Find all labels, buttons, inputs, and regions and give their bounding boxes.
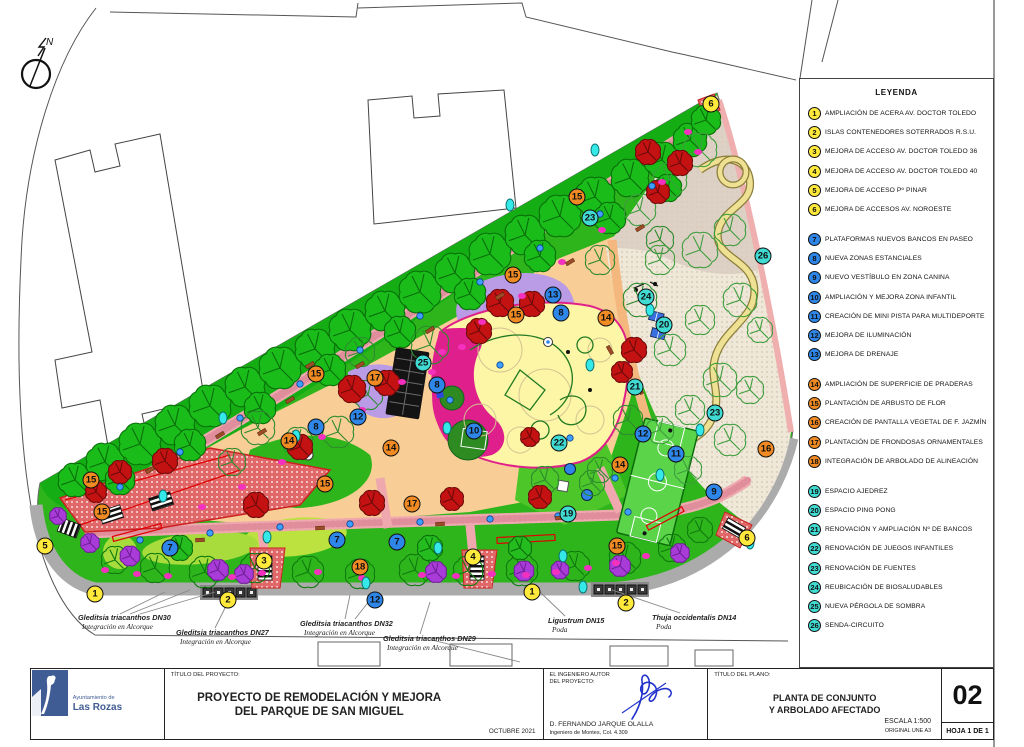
legend-item-6: 6MEJORA DE ACCESOS AV. NOROESTE bbox=[808, 203, 993, 216]
signature bbox=[614, 671, 684, 726]
legend-items: 1AMPLIACIÓN DE ACERA AV. DOCTOR TOLEDO2I… bbox=[800, 107, 993, 632]
tree-annotation: Thuja occidentalis DN14Poda bbox=[652, 613, 736, 631]
legend-item-number: 9 bbox=[808, 271, 821, 284]
legend-item-number: 18 bbox=[808, 455, 821, 468]
legend-item-21: 21RENOVACIÓN Y AMPLIACIÓN Nº DE BANCOS bbox=[808, 523, 993, 536]
tree-annotation-action: Integración en Alcorque bbox=[300, 628, 393, 637]
legend-item-number: 15 bbox=[808, 397, 821, 410]
legend-item-18: 18INTEGRACIÓN DE ARBOLADO DE ALINEACIÓN bbox=[808, 455, 993, 468]
legend-item-11: 11CREACIÓN DE MINI PISTA PARA MULTIDEPOR… bbox=[808, 310, 993, 323]
legend-item-label: AMPLIACIÓN DE SUPERFICIE DE PRADERAS bbox=[825, 381, 973, 388]
legend-item-17: 17PLANTACIÓN DE FRONDOSAS ORNAMENTALES bbox=[808, 436, 993, 449]
legend-item-1: 1AMPLIACIÓN DE ACERA AV. DOCTOR TOLEDO bbox=[808, 107, 993, 120]
sheet-number: 02 bbox=[942, 669, 993, 723]
plan-title-cell: TÍTULO DEL PLANO: PLANTA DE CONJUNTO Y A… bbox=[707, 669, 941, 739]
tree-annotation-action: Poda bbox=[548, 625, 604, 634]
legend-item-20: 20ESPACIO PING PONG bbox=[808, 504, 993, 517]
legend-item-label: ESPACIO AJEDREZ bbox=[825, 488, 888, 495]
legend-item-label: NUEVO VESTÍBULO EN ZONA CANINA bbox=[825, 274, 950, 281]
engineer-name: D. FERNANDO JARQUE OLALLA bbox=[549, 721, 653, 728]
legend-item-number: 5 bbox=[808, 184, 821, 197]
legend-item-label: CREACIÓN DE PANTALLA VEGETAL DE F. JAZMÍ… bbox=[825, 419, 986, 426]
tree-annotation-action: Integración en Alcorque bbox=[383, 643, 476, 652]
legend-item-label: MEJORA DE ACCESO AV. DOCTOR TOLEDO 36 bbox=[825, 148, 977, 155]
legend-item-8: 8NUEVA ZONAS ESTANCIALES bbox=[808, 252, 993, 265]
legend-item-label: MEJORA DE ILUMINACIÓN bbox=[825, 332, 911, 339]
legend-item-12: 12MEJORA DE ILUMINACIÓN bbox=[808, 329, 993, 342]
legend-item-3: 3MEJORA DE ACCESO AV. DOCTOR TOLEDO 36 bbox=[808, 145, 993, 158]
legend-item-9: 9NUEVO VESTÍBULO EN ZONA CANINA bbox=[808, 271, 993, 284]
legend-item-label: RENOVACIÓN DE FUENTES bbox=[825, 565, 916, 572]
legend-item-label: MEJORA DE ACCESO Pº PINAR bbox=[825, 187, 927, 194]
legend-item-label: RENOVACIÓN Y AMPLIACIÓN Nº DE BANCOS bbox=[825, 526, 972, 533]
legend-item-25: 25NUEVA PÉRGOLA DE SOMBRA bbox=[808, 600, 993, 613]
legend-item-label: CREACIÓN DE MINI PISTA PARA MULTIDEPORTE bbox=[825, 313, 985, 320]
tree-annotation: Ligustrum DN15Poda bbox=[548, 616, 604, 634]
legend-item-label: PLANTACIÓN DE ARBUSTO DE FLOR bbox=[825, 400, 946, 407]
sheet-number-cell: 02 HOJA 1 DE 1 bbox=[941, 669, 993, 739]
legend-item-label: MEJORA DE DRENAJE bbox=[825, 351, 898, 358]
tree-annotation-species: Gleditsia triacanthos DN29 bbox=[383, 634, 476, 643]
legend-item-label: ESPACIO PING PONG bbox=[825, 507, 896, 514]
legend-item-number: 12 bbox=[808, 329, 821, 342]
legend-item-16: 16CREACIÓN DE PANTALLA VEGETAL DE F. JAZ… bbox=[808, 416, 993, 429]
tree-annotation-species: Gleditsia triacanthos DN27 bbox=[176, 628, 269, 637]
legend-item-number: 3 bbox=[808, 145, 821, 158]
legend-item-number: 23 bbox=[808, 562, 821, 575]
legend-item-number: 22 bbox=[808, 542, 821, 555]
legend-item-number: 6 bbox=[808, 203, 821, 216]
legend-item-label: NUEVA PÉRGOLA DE SOMBRA bbox=[825, 603, 925, 610]
tree-annotation-action: Integración en Alcorque bbox=[78, 622, 171, 631]
legend-item-22: 22RENOVACIÓN DE JUEGOS INFANTILES bbox=[808, 542, 993, 555]
project-title-line1: PROYECTO DE REMODELACIÓN Y MEJORA bbox=[171, 691, 468, 705]
legend-item-label: SENDA-CIRCUITO bbox=[825, 622, 884, 629]
legend-item-14: 14AMPLIACIÓN DE SUPERFICIE DE PRADERAS bbox=[808, 378, 993, 391]
legend-item-label: NUEVA ZONAS ESTANCIALES bbox=[825, 255, 922, 262]
org-logo-cell: Ayuntamiento de Las Rozas bbox=[31, 669, 164, 739]
legend-item-number: 16 bbox=[808, 416, 821, 429]
legend-item-label: ISLAS CONTENEDORES SOTERRADOS R.S.U. bbox=[825, 129, 976, 136]
plan-title-line1: PLANTA DE CONJUNTO bbox=[714, 693, 935, 705]
title-block: Ayuntamiento de Las Rozas TÍTULO DEL PRO… bbox=[30, 668, 994, 740]
legend-item-label: PLATAFORMAS NUEVOS BANCOS EN PASEO bbox=[825, 236, 973, 243]
legend-item-number: 11 bbox=[808, 310, 821, 323]
legend-item-label: PLANTACIÓN DE FRONDOSAS ORNAMENTALES bbox=[825, 439, 983, 446]
legend-item-number: 25 bbox=[808, 600, 821, 613]
legend-item-2: 2ISLAS CONTENEDORES SOTERRADOS R.S.U. bbox=[808, 126, 993, 139]
legend-item-label: AMPLIACIÓN Y MEJORA ZONA INFANTIL bbox=[825, 294, 956, 301]
project-label: TÍTULO DEL PROYECTO: bbox=[171, 672, 538, 678]
plan-sheet: N 65123412613881281077712121191515151415… bbox=[0, 0, 1024, 747]
las-rozas-logo-icon bbox=[31, 669, 69, 717]
north-label: N bbox=[46, 37, 54, 48]
legend-item-number: 13 bbox=[808, 348, 821, 361]
tree-annotation: Gleditsia triacanthos DN27Integración en… bbox=[176, 628, 269, 646]
legend-item-label: AMPLIACIÓN DE ACERA AV. DOCTOR TOLEDO bbox=[825, 110, 976, 117]
legend-item-23: 23RENOVACIÓN DE FUENTES bbox=[808, 562, 993, 575]
plan-scale: ESCALA 1:500 bbox=[884, 718, 931, 725]
tree-annotation-action: Poda bbox=[652, 622, 736, 631]
legend-item-number: 2 bbox=[808, 126, 821, 139]
tree-annotation: Gleditsia triacanthos DN30Integración en… bbox=[78, 613, 171, 631]
legend-item-number: 26 bbox=[808, 619, 821, 632]
project-date: OCTUBRE 2021 bbox=[489, 728, 536, 735]
org-name-large: Las Rozas bbox=[73, 702, 122, 713]
north-arrow: N bbox=[22, 37, 54, 88]
tree-annotation-species: Gleditsia triacanthos DN32 bbox=[300, 619, 393, 628]
legend-item-number: 1 bbox=[808, 107, 821, 120]
legend-item-label: MEJORA DE ACCESOS AV. NOROESTE bbox=[825, 206, 951, 213]
legend-item-7: 7PLATAFORMAS NUEVOS BANCOS EN PASEO bbox=[808, 233, 993, 246]
legend-item-number: 14 bbox=[808, 378, 821, 391]
project-title-line2: DEL PARQUE DE SAN MIGUEL bbox=[171, 705, 468, 719]
plan-title-line2: Y ARBOLADO AFECTADO bbox=[714, 705, 935, 717]
tree-annotation: Gleditsia triacanthos DN29Integración en… bbox=[383, 634, 476, 652]
legend-item-24: 24REUBICACIÓN DE BIOSALUDABLES bbox=[808, 581, 993, 594]
legend-item-26: 26SENDA-CIRCUITO bbox=[808, 619, 993, 632]
legend-item-label: INTEGRACIÓN DE ARBOLADO DE ALINEACIÓN bbox=[825, 458, 978, 465]
legend-panel: LEYENDA 1AMPLIACIÓN DE ACERA AV. DOCTOR … bbox=[799, 78, 994, 668]
legend-item-label: RENOVACIÓN DE JUEGOS INFANTILES bbox=[825, 545, 953, 552]
legend-item-number: 8 bbox=[808, 252, 821, 265]
plan-original-format: ORIGINAL UNE A3 bbox=[885, 728, 931, 734]
legend-item-number: 17 bbox=[808, 436, 821, 449]
tree-annotation-species: Ligustrum DN15 bbox=[548, 616, 604, 625]
legend-item-number: 10 bbox=[808, 291, 821, 304]
legend-item-13: 13MEJORA DE DRENAJE bbox=[808, 348, 993, 361]
legend-item-number: 19 bbox=[808, 485, 821, 498]
tree-annotation-species: Gleditsia triacanthos DN30 bbox=[78, 613, 171, 622]
legend-item-number: 20 bbox=[808, 504, 821, 517]
legend-item-number: 4 bbox=[808, 165, 821, 178]
legend-item-5: 5MEJORA DE ACCESO Pº PINAR bbox=[808, 184, 993, 197]
legend-item-number: 21 bbox=[808, 523, 821, 536]
engineer-cell: EL INGENIERO AUTOR DEL PROYECTO: D. FERN… bbox=[543, 669, 707, 739]
legend-item-number: 7 bbox=[808, 233, 821, 246]
tree-annotation-action: Integración en Alcorque bbox=[176, 637, 269, 646]
legend-item-10: 10AMPLIACIÓN Y MEJORA ZONA INFANTIL bbox=[808, 291, 993, 304]
legend-item-label: REUBICACIÓN DE BIOSALUDABLES bbox=[825, 584, 943, 591]
sheet-info: HOJA 1 DE 1 bbox=[942, 723, 993, 739]
tree-annotation-species: Thuja occidentalis DN14 bbox=[652, 613, 736, 622]
legend-item-4: 4MEJORA DE ACCESO AV. DOCTOR TOLEDO 40 bbox=[808, 165, 993, 178]
legend-item-15: 15PLANTACIÓN DE ARBUSTO DE FLOR bbox=[808, 397, 993, 410]
engineer-title: Ingeniero de Montes, Col. 4.309 bbox=[549, 730, 627, 736]
legend-item-number: 24 bbox=[808, 581, 821, 594]
plan-label: TÍTULO DEL PLANO: bbox=[714, 672, 935, 678]
legend-item-label: MEJORA DE ACCESO AV. DOCTOR TOLEDO 40 bbox=[825, 168, 977, 175]
legend-title: LEYENDA bbox=[800, 88, 993, 97]
project-title-cell: TÍTULO DEL PROYECTO: PROYECTO DE REMODEL… bbox=[164, 669, 544, 739]
tree-annotation: Gleditsia triacanthos DN32Integración en… bbox=[300, 619, 393, 637]
legend-item-19: 19ESPACIO AJEDREZ bbox=[808, 485, 993, 498]
